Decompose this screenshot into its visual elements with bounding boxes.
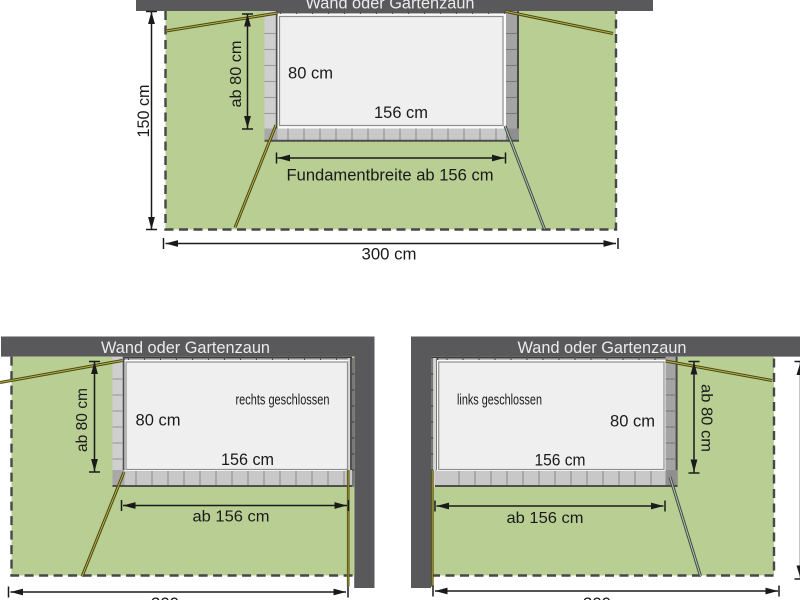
svg-text:ab 156 cm: ab 156 cm xyxy=(193,509,270,526)
svg-text:rechts geschlossen: rechts geschlossen xyxy=(236,392,330,409)
svg-text:80 cm: 80 cm xyxy=(136,411,181,430)
svg-text:ab 80 cm: ab 80 cm xyxy=(228,41,245,108)
svg-text:Wand oder Gartenzaun: Wand oder Gartenzaun xyxy=(518,338,687,357)
svg-text:80 cm: 80 cm xyxy=(288,64,333,83)
svg-text:300 cm: 300 cm xyxy=(362,245,417,264)
svg-text:ab 156 cm: ab 156 cm xyxy=(507,510,584,527)
svg-text:ab 80 cm: ab 80 cm xyxy=(698,384,715,452)
svg-text:156 cm: 156 cm xyxy=(374,103,428,122)
svg-text:80 cm: 80 cm xyxy=(610,412,655,431)
svg-text:156 cm: 156 cm xyxy=(221,450,274,469)
svg-text:Wand oder Gartenzaun: Wand oder Gartenzaun xyxy=(101,338,270,357)
svg-text:links geschlossen: links geschlossen xyxy=(457,392,542,409)
svg-text:Fundamentbreite ab 156 cm: Fundamentbreite ab 156 cm xyxy=(287,166,494,185)
svg-text:300 cm: 300 cm xyxy=(151,594,206,600)
svg-text:ab 80 cm: ab 80 cm xyxy=(74,388,91,452)
svg-text:156 cm: 156 cm xyxy=(535,451,586,470)
svg-text:150 cm: 150 cm xyxy=(134,85,153,138)
svg-text:Wand oder Gartenzaun: Wand oder Gartenzaun xyxy=(306,0,475,12)
svg-text:300 cm: 300 cm xyxy=(583,594,638,600)
